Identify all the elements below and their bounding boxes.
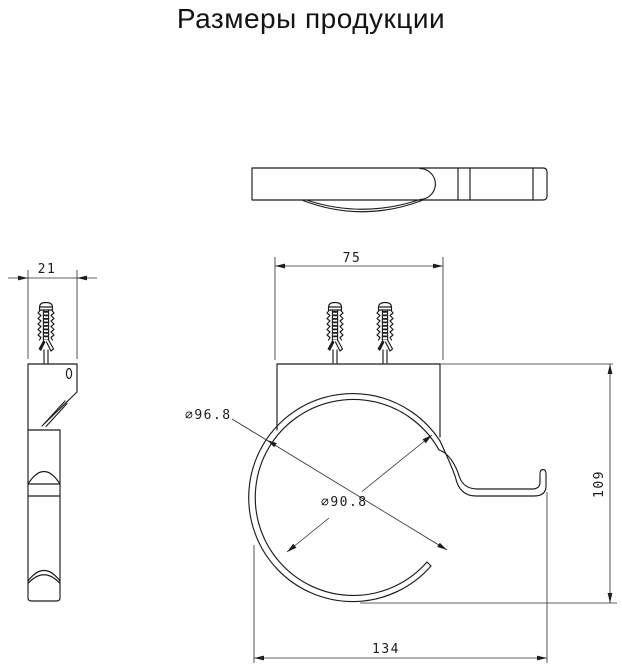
dim-21-label: 21: [38, 262, 57, 277]
arrow-icon: [77, 276, 87, 281]
front-view: 75 ∅96.8: [185, 251, 617, 663]
arrow-icon: [608, 364, 613, 374]
arrow-icon: [275, 264, 285, 269]
hook: [439, 441, 546, 496]
mounting-plate: [277, 364, 440, 437]
ring-side-top: [28, 472, 60, 497]
arrow-icon: [18, 276, 28, 281]
dim-134-label: 134: [372, 642, 400, 657]
side-view: 21: [8, 262, 97, 601]
arrow-icon: [433, 264, 443, 269]
arrow-icon: [423, 435, 432, 443]
ring-side-bottom: [28, 571, 60, 584]
arrow-icon: [608, 593, 613, 603]
top-view-rounded-end: [420, 169, 435, 200]
dim-inner-diameter: ∅90.8: [287, 435, 432, 552]
arrow-icon: [254, 656, 264, 661]
dim-75-label: 75: [343, 251, 362, 266]
dim-109: 109: [360, 364, 617, 603]
arrow-icon: [267, 440, 277, 447]
dim-134: 134: [254, 492, 547, 663]
side-profile: [28, 364, 77, 601]
wall-anchor-side: [38, 303, 54, 364]
mount-hole: [66, 369, 71, 379]
wall-anchor-left: [327, 303, 343, 364]
top-view: [252, 168, 547, 212]
top-view-body: [252, 168, 547, 200]
ring-bulge-outer: [303, 201, 422, 212]
page: Размеры продукции: [0, 0, 622, 672]
ring-end-cap: [427, 562, 431, 566]
wall-anchor-right: [377, 303, 393, 364]
dim-109-label: 109: [592, 470, 607, 498]
arrow-icon: [437, 543, 447, 550]
outer-diameter-label: ∅96.8: [185, 408, 232, 423]
arrow-icon: [537, 656, 547, 661]
dim-75: 75: [275, 251, 443, 360]
inner-diameter-label: ∅90.8: [321, 495, 368, 510]
technical-drawing: 21 75: [0, 0, 622, 672]
ring-bulge-inner: [308, 201, 417, 210]
